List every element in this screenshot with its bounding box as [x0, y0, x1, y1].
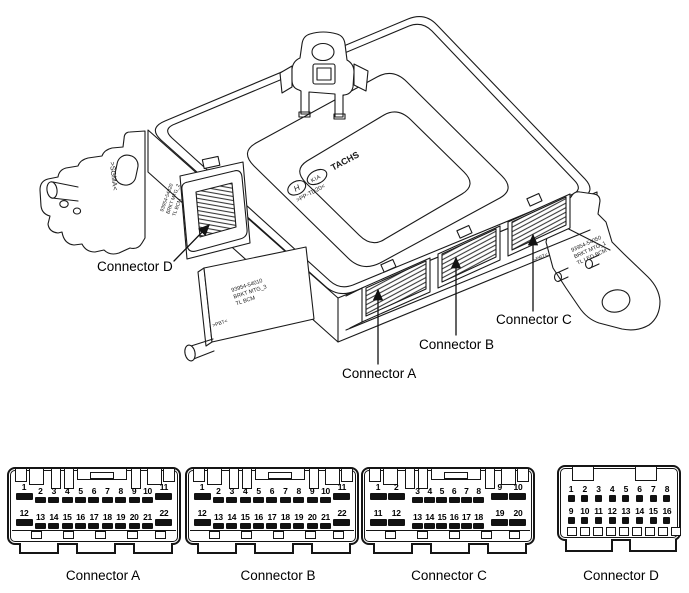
pin-rect	[473, 523, 484, 529]
pin-cell-14: 14	[226, 509, 238, 529]
pin-cell-13: 13	[411, 509, 423, 529]
pin-cell-4: 4	[239, 483, 251, 503]
pin-cell-3: 3	[226, 483, 238, 503]
pin-rect	[412, 523, 423, 529]
pin-rect	[102, 497, 113, 503]
bottom-tooth	[606, 527, 616, 536]
pin-number: 3	[230, 487, 234, 496]
top-slot	[517, 469, 529, 482]
pin-rect	[424, 497, 435, 503]
pin-cell-4: 4	[606, 485, 618, 502]
bottom-tooth	[658, 527, 668, 536]
pin-rect	[115, 497, 126, 503]
pin-rect	[509, 493, 526, 500]
pin-number: 18	[103, 513, 112, 522]
pin-number: 11	[160, 483, 168, 492]
connector-d-caption: Connector D	[559, 568, 683, 584]
pin-cell-18: 18	[101, 509, 113, 529]
pin-rect	[636, 517, 643, 524]
top-slot	[163, 469, 175, 482]
pin-rect	[293, 497, 304, 503]
pin-number: 11	[594, 507, 602, 516]
pin-number: 12	[198, 509, 207, 518]
pin-cell-10: 10	[142, 483, 154, 503]
bottom-tooth	[481, 531, 492, 539]
pin-number: 5	[624, 485, 628, 494]
pin-number: 7	[105, 487, 109, 496]
pin-cell-9: 9	[128, 483, 140, 503]
pin-cell-11: 11	[369, 509, 387, 526]
pin-cell-18: 18	[279, 509, 291, 529]
pin-cell-3: 3	[411, 483, 423, 503]
pin-cell-11: 11	[155, 483, 173, 500]
pin-rect	[213, 523, 224, 529]
pin-rect	[370, 519, 387, 526]
pin-number: 4	[243, 487, 247, 496]
pin-cell-16: 16	[448, 509, 460, 529]
pin-rect	[35, 523, 46, 529]
pin-number: 21	[143, 513, 152, 522]
pin-number: 14	[227, 513, 236, 522]
pin-cell-6: 6	[448, 483, 460, 503]
pin-cell-15: 15	[436, 509, 448, 529]
pin-cell-12: 12	[387, 509, 405, 526]
connector-c-caption: Connector C	[362, 568, 536, 584]
top-slot	[193, 469, 205, 482]
bottom-tooth	[632, 527, 642, 536]
pin-cell-13: 13	[620, 507, 632, 524]
pin-number: 17	[90, 513, 99, 522]
pin-rect	[424, 523, 435, 529]
pin-rect	[35, 497, 46, 503]
pin-rect	[509, 519, 526, 526]
pin-number: 18	[474, 513, 483, 522]
pin-rect	[595, 517, 602, 524]
top-slot	[341, 469, 353, 482]
pin-number: 12	[392, 509, 401, 518]
pin-rect	[436, 523, 447, 529]
pin-rect	[436, 497, 447, 503]
bottom-tooth	[593, 527, 603, 536]
bottom-tooth	[385, 531, 396, 539]
pin-number: 10	[580, 507, 589, 516]
pin-rect	[388, 519, 405, 526]
callout-connector-b: Connector B	[419, 337, 494, 353]
pin-number: 2	[582, 485, 586, 494]
pin-number: 6	[92, 487, 96, 496]
pin-cell-13: 13	[212, 509, 224, 529]
bottom-tooth	[619, 527, 629, 536]
pin-cell-14: 14	[424, 509, 436, 529]
top-tab-inner	[444, 472, 468, 479]
pin-rect	[568, 517, 575, 524]
bottom-tooth	[127, 531, 138, 539]
connector-c-pinout: 1234567891011121314151617181920	[361, 467, 535, 545]
pin-rect	[280, 523, 291, 529]
pin-number: 4	[610, 485, 614, 494]
module-isometric-drawing: H KIA TACHS >PP-TD20< >SGMA< 93954-54020…	[0, 0, 689, 460]
top-tab-inner	[268, 472, 292, 479]
pin-number: 14	[635, 507, 644, 516]
pin-number: 10	[143, 487, 152, 496]
bottom-mounting-bracket	[183, 247, 314, 362]
pin-cell-8: 8	[661, 485, 673, 502]
pin-cell-16: 16	[661, 507, 673, 524]
pin-row: 1234567891011	[193, 483, 351, 503]
pin-cell-21: 21	[142, 509, 154, 529]
pin-number: 12	[20, 509, 29, 518]
pin-number: 9	[569, 507, 573, 516]
top-slot	[369, 469, 381, 482]
connector-a-pinout: 12345678910111213141516171819202122	[7, 467, 181, 545]
pin-number: 7	[464, 487, 468, 496]
pin-number: 18	[281, 513, 290, 522]
bottom-tooth	[580, 527, 590, 536]
pin-cell-17: 17	[88, 509, 100, 529]
pin-cell-6: 6	[266, 483, 278, 503]
mounting-foot	[629, 539, 677, 552]
pin-row: 11121314151617181920	[369, 509, 527, 529]
bottom-tooth	[241, 531, 252, 539]
pin-cell-20: 20	[306, 509, 318, 529]
pin-number: 19	[116, 513, 125, 522]
pin-number: 5	[256, 487, 260, 496]
bottom-tooth	[671, 527, 681, 536]
pin-rect	[266, 497, 277, 503]
mounting-foot	[254, 543, 294, 554]
pin-cell-9: 9	[565, 507, 577, 524]
pin-rect	[333, 519, 350, 526]
pin-cell-18: 18	[473, 509, 485, 529]
pin-rect	[609, 517, 616, 524]
bottom-tooth	[449, 531, 460, 539]
mounting-foot	[19, 543, 59, 554]
pin-row: 12345678	[565, 485, 673, 502]
pin-number: 14	[425, 513, 434, 522]
pin-number: 11	[338, 483, 346, 492]
bottom-tooth	[31, 531, 42, 539]
pin-cell-10: 10	[509, 483, 527, 500]
pin-number: 3	[596, 485, 600, 494]
pin-rect	[461, 523, 472, 529]
mounting-foot	[565, 539, 613, 552]
pin-number: 5	[78, 487, 82, 496]
pin-number: 7	[651, 485, 655, 494]
bottom-tooth	[305, 531, 316, 539]
mounting-foot	[487, 543, 527, 554]
pin-cell-14: 14	[48, 509, 60, 529]
pin-number: 1	[376, 483, 380, 492]
pin-number: 2	[216, 487, 220, 496]
bottom-tooth	[209, 531, 220, 539]
pin-number: 16	[662, 507, 671, 516]
pin-rect	[622, 495, 629, 502]
pin-number: 10	[514, 483, 523, 492]
pin-rect	[155, 493, 172, 500]
pin-cell-7: 7	[647, 485, 659, 502]
mounting-foot	[197, 543, 237, 554]
bottom-tooth	[333, 531, 344, 539]
bottom-tooth	[645, 527, 655, 536]
pin-rect	[491, 493, 508, 500]
top-notch	[572, 467, 594, 481]
pin-rect	[595, 495, 602, 502]
pin-number: 3	[52, 487, 56, 496]
mounting-foot	[311, 543, 351, 554]
bottom-tooth	[567, 527, 577, 536]
pin-rect	[491, 519, 508, 526]
pin-rect	[293, 523, 304, 529]
bcm-connector-figure: H KIA TACHS >PP-TD20< >SGMA< 93954-54020…	[0, 0, 689, 593]
pin-rect	[240, 497, 251, 503]
pin-number: 12	[608, 507, 617, 516]
pin-rect	[650, 495, 657, 502]
pin-cell-11: 11	[333, 483, 351, 500]
pin-number: 19	[294, 513, 303, 522]
pin-cell-19: 19	[115, 509, 127, 529]
pin-number: 8	[476, 487, 480, 496]
pin-rect	[142, 523, 153, 529]
pin-rect	[240, 523, 251, 529]
pin-number: 1	[22, 483, 26, 492]
pin-number: 15	[437, 513, 446, 522]
pin-rect	[280, 497, 291, 503]
pin-cell-7: 7	[279, 483, 291, 503]
pin-cell-19: 19	[293, 509, 305, 529]
callout-connector-c: Connector C	[496, 312, 572, 328]
pin-rect	[663, 495, 670, 502]
pin-rect	[388, 493, 405, 500]
pin-rect	[226, 497, 237, 503]
pin-rect	[370, 493, 387, 500]
pin-rect	[48, 523, 59, 529]
pin-number: 13	[214, 513, 223, 522]
pin-rect	[473, 497, 484, 503]
pin-number: 10	[321, 487, 330, 496]
pin-cell-1: 1	[369, 483, 387, 500]
pin-number: 22	[159, 509, 168, 518]
pin-rect	[48, 497, 59, 503]
pin-rect	[115, 523, 126, 529]
pin-number: 13	[413, 513, 422, 522]
pin-cell-20: 20	[509, 509, 527, 526]
pin-rect	[581, 495, 588, 502]
mounting-foot	[430, 543, 470, 554]
pin-row: 1213141516171819202122	[193, 509, 351, 529]
pin-rect	[609, 495, 616, 502]
pin-rect	[333, 493, 350, 500]
pin-number: 19	[495, 509, 504, 518]
pin-number: 20	[514, 509, 523, 518]
pin-row: 1213141516171819202122	[15, 509, 173, 529]
pin-cell-5: 5	[75, 483, 87, 503]
connector-d-pinout: 12345678910111213141516	[557, 465, 681, 541]
pin-cell-13: 13	[34, 509, 46, 529]
pin-cell-12: 12	[193, 509, 211, 526]
pin-rect	[636, 495, 643, 502]
pin-rect	[266, 523, 277, 529]
pin-row: 910111213141516	[565, 507, 673, 524]
pin-number: 8	[297, 487, 301, 496]
pin-number: 5	[440, 487, 444, 496]
pin-row: 12345678910	[369, 483, 527, 503]
pin-rect	[16, 519, 33, 526]
pin-cell-3: 3	[592, 485, 604, 502]
pin-cell-4: 4	[61, 483, 73, 503]
pin-rect	[622, 517, 629, 524]
bottom-tooth	[95, 531, 106, 539]
pin-number: 11	[374, 509, 382, 518]
pin-rect	[253, 523, 264, 529]
pin-number: 2	[394, 483, 398, 492]
pin-rect	[75, 523, 86, 529]
pin-cell-1: 1	[565, 485, 577, 502]
pin-number: 4	[65, 487, 69, 496]
pin-cell-22: 22	[155, 509, 173, 526]
pin-cell-15: 15	[239, 509, 251, 529]
pin-rect	[650, 517, 657, 524]
pin-rect	[16, 493, 33, 500]
pin-cell-11: 11	[592, 507, 604, 524]
pin-cell-19: 19	[491, 509, 509, 526]
pin-number: 13	[621, 507, 630, 516]
pin-cell-8: 8	[115, 483, 127, 503]
pin-rect	[449, 523, 460, 529]
pin-number: 3	[415, 487, 419, 496]
pin-cell-15: 15	[647, 507, 659, 524]
pin-cell-5: 5	[436, 483, 448, 503]
pin-cell-12: 12	[606, 507, 618, 524]
bottom-tooth	[509, 531, 520, 539]
pin-number: 6	[270, 487, 274, 496]
top-notch	[635, 467, 657, 481]
pin-rect	[568, 495, 575, 502]
pin-number: 22	[337, 509, 346, 518]
bottom-tooth	[63, 531, 74, 539]
pin-number: 9	[310, 487, 314, 496]
pin-number: 4	[427, 487, 431, 496]
pin-rect	[461, 497, 472, 503]
pin-cell-7: 7	[460, 483, 472, 503]
pin-number: 2	[38, 487, 42, 496]
pin-rect	[194, 493, 211, 500]
pin-rect	[320, 497, 331, 503]
pin-number: 6	[452, 487, 456, 496]
pin-cell-16: 16	[75, 509, 87, 529]
bottom-tooth	[417, 531, 428, 539]
pin-number: 16	[76, 513, 85, 522]
pin-cell-7: 7	[101, 483, 113, 503]
pin-cell-20: 20	[128, 509, 140, 529]
pin-number: 20	[130, 513, 139, 522]
pin-number: 8	[665, 485, 669, 494]
pin-rect	[88, 523, 99, 529]
pin-rect	[88, 497, 99, 503]
pin-number: 16	[450, 513, 459, 522]
pin-number: 21	[321, 513, 330, 522]
callout-connector-a: Connector A	[342, 366, 416, 382]
pin-rect	[142, 497, 153, 503]
pin-rect	[320, 523, 331, 529]
pin-cell-9: 9	[306, 483, 318, 503]
mounting-foot	[76, 543, 116, 554]
pin-cell-6: 6	[88, 483, 100, 503]
pin-rect	[253, 497, 264, 503]
pin-number: 15	[63, 513, 72, 522]
pin-number: 17	[268, 513, 277, 522]
pin-rect	[129, 523, 140, 529]
pin-cell-15: 15	[61, 509, 73, 529]
pin-cell-9: 9	[491, 483, 509, 500]
pin-cell-14: 14	[634, 507, 646, 524]
pin-cell-5: 5	[253, 483, 265, 503]
pin-cell-17: 17	[460, 509, 472, 529]
pin-number: 16	[254, 513, 263, 522]
pin-number: 9	[132, 487, 136, 496]
pin-rect	[129, 497, 140, 503]
pin-cell-2: 2	[212, 483, 224, 503]
pin-cell-10: 10	[320, 483, 332, 503]
pin-number: 9	[498, 483, 502, 492]
pin-number: 14	[49, 513, 58, 522]
pin-rect	[226, 523, 237, 529]
top-tab-inner	[90, 472, 114, 479]
pin-number: 8	[119, 487, 123, 496]
callout-connector-d: Connector D	[97, 259, 173, 275]
pin-cell-5: 5	[620, 485, 632, 502]
top-slot	[15, 469, 27, 482]
left-mounting-bracket	[40, 131, 145, 254]
pin-cell-8: 8	[473, 483, 485, 503]
pin-number: 17	[462, 513, 471, 522]
connector-a-caption: Connector A	[16, 568, 190, 584]
pin-number: 1	[569, 485, 573, 494]
pin-cell-21: 21	[320, 509, 332, 529]
pin-number: 13	[36, 513, 45, 522]
bottom-tooth	[155, 531, 166, 539]
pin-number: 20	[308, 513, 317, 522]
pin-cell-12: 12	[15, 509, 33, 526]
pin-rect	[62, 497, 73, 503]
pin-rect	[194, 519, 211, 526]
connector-b-caption: Connector B	[191, 568, 365, 584]
pin-number: 7	[283, 487, 287, 496]
pin-number: 6	[637, 485, 641, 494]
pin-cell-6: 6	[634, 485, 646, 502]
connector-b-pinout: 12345678910111213141516171819202122	[185, 467, 359, 545]
pin-cell-16: 16	[253, 509, 265, 529]
pin-number: 1	[200, 483, 204, 492]
pin-cell-2: 2	[387, 483, 405, 500]
pin-cell-1: 1	[193, 483, 211, 500]
pin-row: 1234567891011	[15, 483, 173, 503]
pin-rect	[412, 497, 423, 503]
pin-cell-8: 8	[293, 483, 305, 503]
pin-rect	[449, 497, 460, 503]
pin-rect	[102, 523, 113, 529]
pin-number: 15	[241, 513, 250, 522]
pin-rect	[307, 497, 318, 503]
pin-number: 15	[649, 507, 658, 516]
pin-cell-2: 2	[34, 483, 46, 503]
pin-rect	[213, 497, 224, 503]
mounting-foot	[373, 543, 413, 554]
pin-rect	[155, 519, 172, 526]
pin-rect	[75, 497, 86, 503]
mounting-foot	[133, 543, 173, 554]
pin-cell-1: 1	[15, 483, 33, 500]
pin-cell-2: 2	[579, 485, 591, 502]
